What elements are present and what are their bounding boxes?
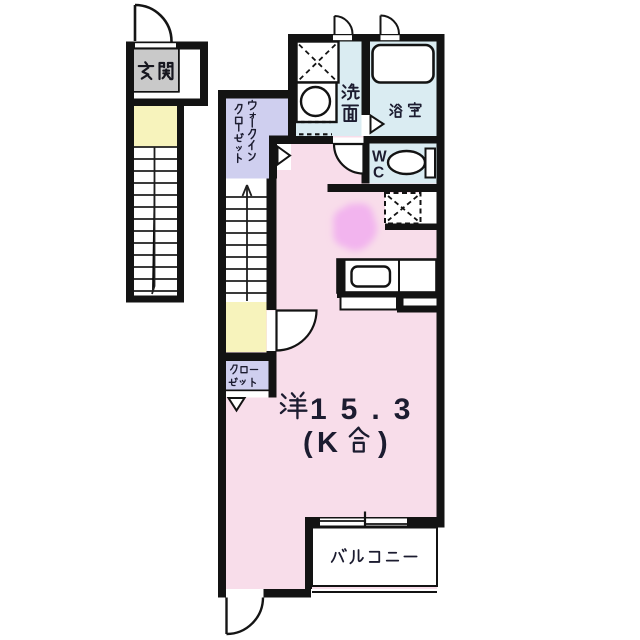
svg-text:15.3: 15.3 [310,393,424,426]
svg-text:W: W [372,149,387,166]
svg-text:(: ( [303,427,313,459]
svg-text:K: K [317,427,338,459]
svg-text:C: C [373,165,384,182]
svg-text:): ) [378,427,388,459]
